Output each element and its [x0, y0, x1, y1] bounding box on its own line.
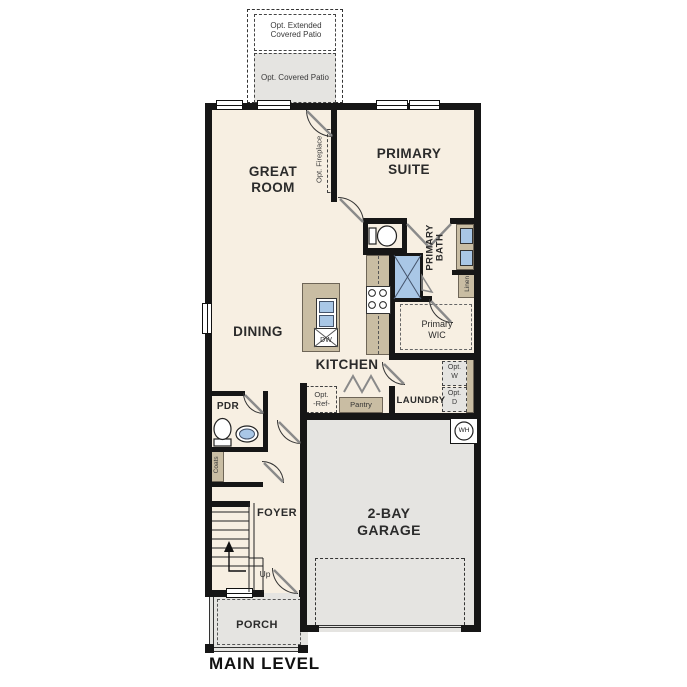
wall-toilet-east [402, 224, 407, 250]
porch-rail-bottom [209, 647, 307, 652]
pdr-label: PDR [211, 401, 245, 413]
wall-pdr-top [205, 391, 245, 396]
opt-covered-patio-label: Opt. Covered Patio [256, 73, 334, 82]
window-dining [202, 303, 212, 334]
wall-right [474, 103, 481, 632]
coats-label: Coats [213, 425, 221, 505]
porch-post-right [298, 645, 308, 653]
laundry-counter-strip [466, 359, 474, 413]
vanity-sink-1 [460, 228, 473, 244]
primary-wic-label: Primary WIC [415, 319, 459, 340]
wall-garage-bottom-left [300, 625, 319, 632]
garage-door-line [319, 625, 461, 628]
opt-ref-label: Opt.-Ref- [306, 391, 337, 409]
wall-suite-south-b [450, 218, 476, 224]
wall-wic-south [389, 353, 481, 360]
wall-porch-a [205, 590, 226, 597]
porch-post-left [205, 644, 214, 653]
water-heater-label: WH [452, 427, 476, 435]
opt-washer-label: Opt.W [442, 364, 467, 382]
great-room-label: GREAT ROOM [233, 164, 313, 196]
opt-fireplace-label: Opt. Fireplace [316, 119, 325, 199]
foyer-label: FOYER [247, 507, 307, 520]
pantry-label: Pantry [339, 401, 383, 410]
up-label: Up [254, 569, 276, 579]
window-greatroom-1 [216, 100, 243, 110]
wall-suite-south-a [363, 218, 407, 224]
window-porch [226, 588, 253, 598]
kitchen-label: KITCHEN [302, 357, 392, 373]
wall-left [205, 103, 212, 597]
shower [392, 253, 423, 301]
wall-porch-b [253, 590, 264, 597]
garage-label: 2-BAY GARAGE [339, 505, 439, 538]
wall-garage-bottom-right [461, 625, 481, 632]
laundry-label: LAUNDRY [393, 395, 449, 406]
garage-door-dash-top [315, 558, 464, 559]
dishwasher-label: DW [314, 337, 338, 345]
plan-title: MAIN LEVEL [209, 654, 369, 674]
porch-rail-left [209, 597, 214, 650]
wall-porch-c [299, 590, 307, 597]
primary-bath-label: PRIMARY BATH [426, 217, 447, 277]
garage-door-dash-right [464, 558, 465, 625]
wall-toilet-west [363, 224, 368, 250]
window-greatroom-2 [257, 100, 291, 110]
wall-stairs-top [205, 501, 250, 507]
floor-plan: Opt. Extended Covered Patio Opt. Covered… [0, 0, 687, 687]
linen-label: Linen [464, 244, 472, 324]
cooktop [366, 286, 391, 314]
dining-label: DINING [213, 324, 303, 340]
porch-label: PORCH [227, 619, 287, 632]
primary-suite-label: PRIMARY SUITE [364, 146, 454, 178]
island-sink-basin-2 [319, 315, 334, 327]
opt-extended-patio-label: Opt. Extended Covered Patio [260, 21, 332, 40]
wall-garage-left [300, 413, 307, 632]
garage-door-dash-left [315, 558, 316, 625]
island-sink-basin-1 [319, 301, 334, 313]
window-suite-2 [409, 100, 440, 110]
opt-dryer-label: Opt.D [442, 390, 467, 408]
window-suite-1 [376, 100, 408, 110]
